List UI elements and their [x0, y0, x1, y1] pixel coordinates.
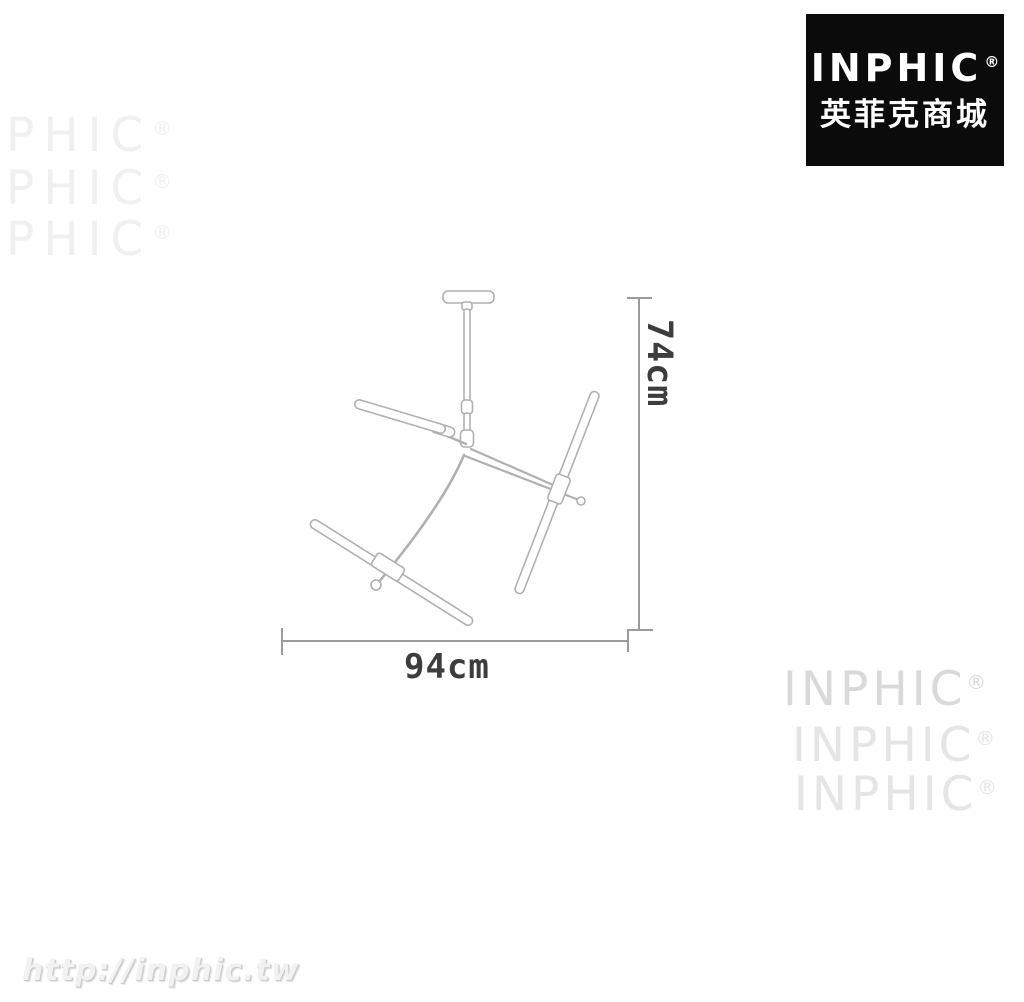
arm-right-end-cap — [577, 497, 585, 505]
registered-mark: ® — [975, 729, 995, 749]
site-url-watermark: http://inphic.tw — [22, 956, 299, 986]
tube-light-upper-left — [354, 399, 447, 435]
stem-joint — [462, 400, 473, 414]
dimension-diagram — [0, 0, 1024, 1002]
arm-right-upper — [471, 449, 560, 488]
stem-rod — [464, 309, 470, 401]
width-dimension-label: 94cm — [404, 650, 490, 684]
arm-lower-left-end-cap — [371, 580, 381, 590]
watermark-text: INPHIC — [792, 718, 975, 773]
watermark-bottom-right-row: INPHIC® — [792, 722, 995, 769]
tube-right-socket — [547, 473, 571, 505]
chandelier-fixture — [309, 291, 601, 627]
watermark-bottom-right-row: INPHIC® — [794, 771, 997, 818]
registered-mark: ® — [966, 673, 986, 693]
watermark-text: INPHIC — [794, 767, 977, 822]
registered-mark: ® — [977, 778, 997, 798]
watermark-bottom-right-row: INPHIC® — [783, 666, 986, 713]
height-dimension-label: 74cm — [641, 319, 676, 415]
product-image-canvas: { "brand_badge": { "name": "INPHIC", "re… — [0, 0, 1024, 1002]
watermark-text: INPHIC — [783, 662, 966, 717]
